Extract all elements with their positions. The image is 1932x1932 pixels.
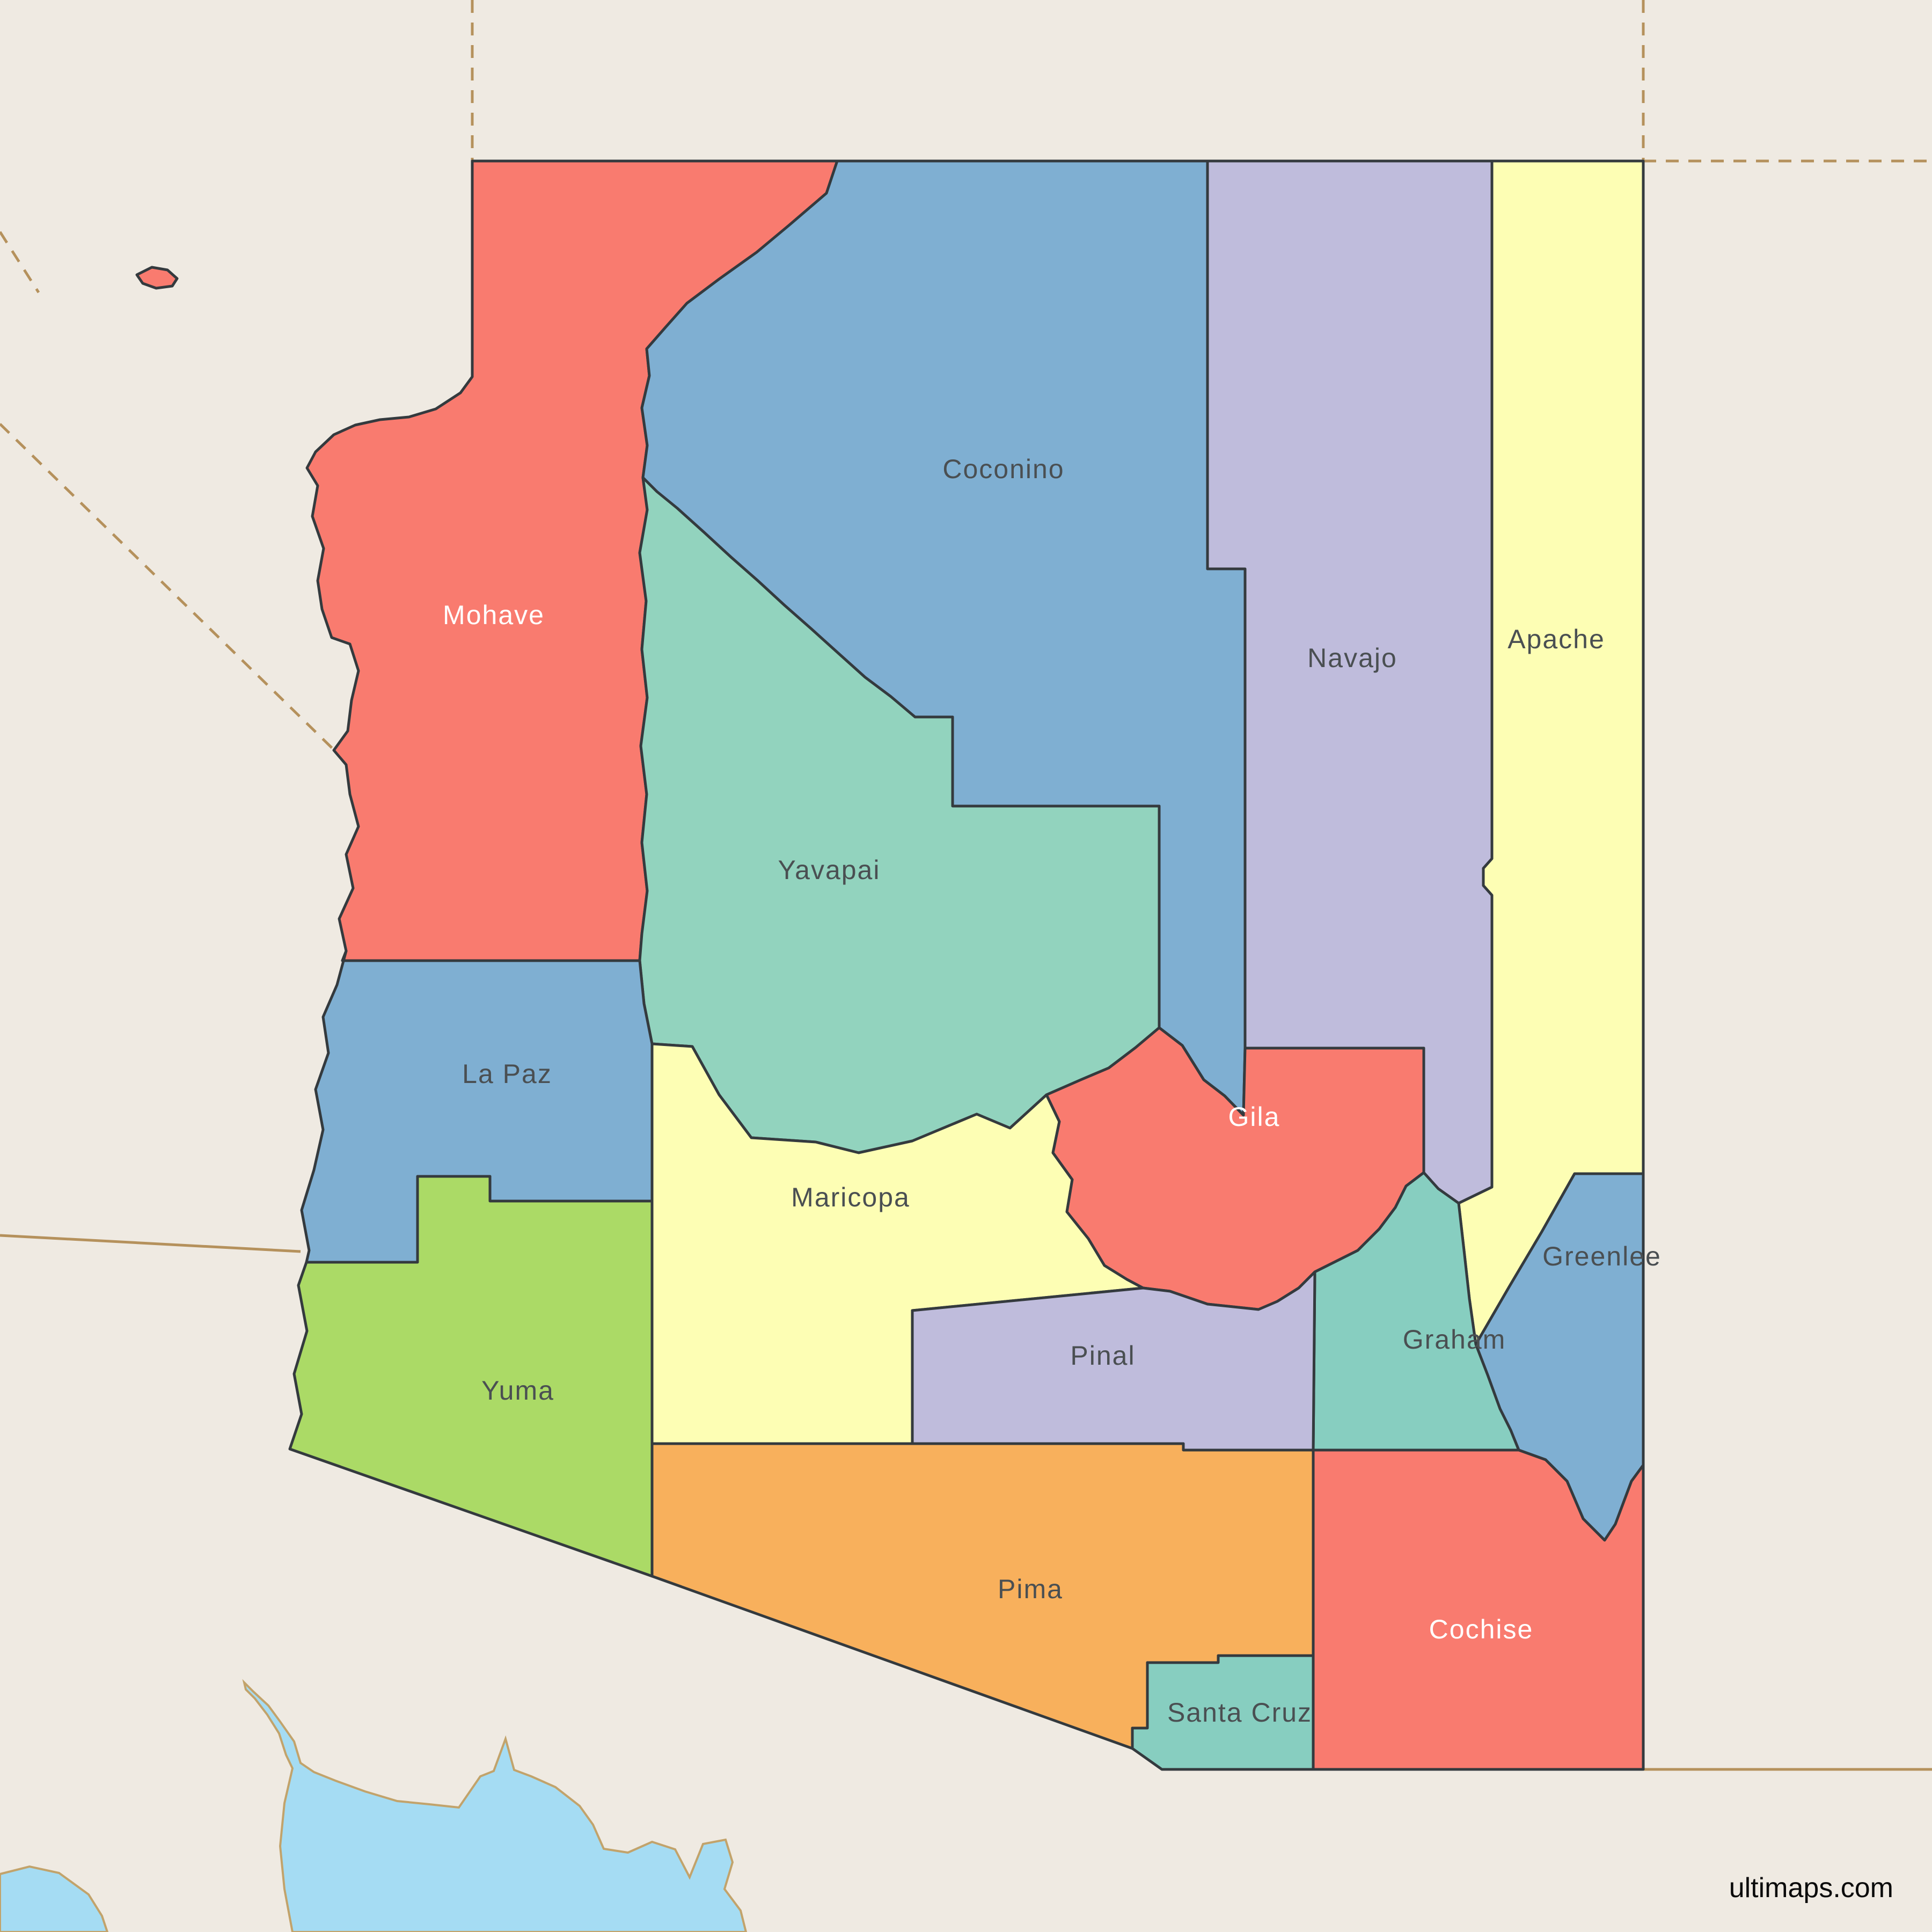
county-santa-cruz[interactable] — [1132, 1656, 1313, 1769]
map-canvas: MohaveCoconinoNavajoApacheYavapaiLa PazM… — [0, 0, 1932, 1932]
arizona-county-map: MohaveCoconinoNavajoApacheYavapaiLa PazM… — [0, 0, 1932, 1932]
watermark: ultimaps.com — [1729, 1872, 1893, 1904]
nevada-california-border — [0, 424, 333, 749]
water-layer — [0, 1682, 746, 1932]
gulf-of-california — [244, 1682, 746, 1932]
nevada-california-corner — [0, 232, 39, 292]
county-mohave-river-sliver-[interactable] — [137, 267, 177, 288]
california-mexico-border — [0, 1235, 301, 1252]
county-layer — [137, 161, 1643, 1769]
shore-inlet-southwest — [0, 1867, 107, 1932]
